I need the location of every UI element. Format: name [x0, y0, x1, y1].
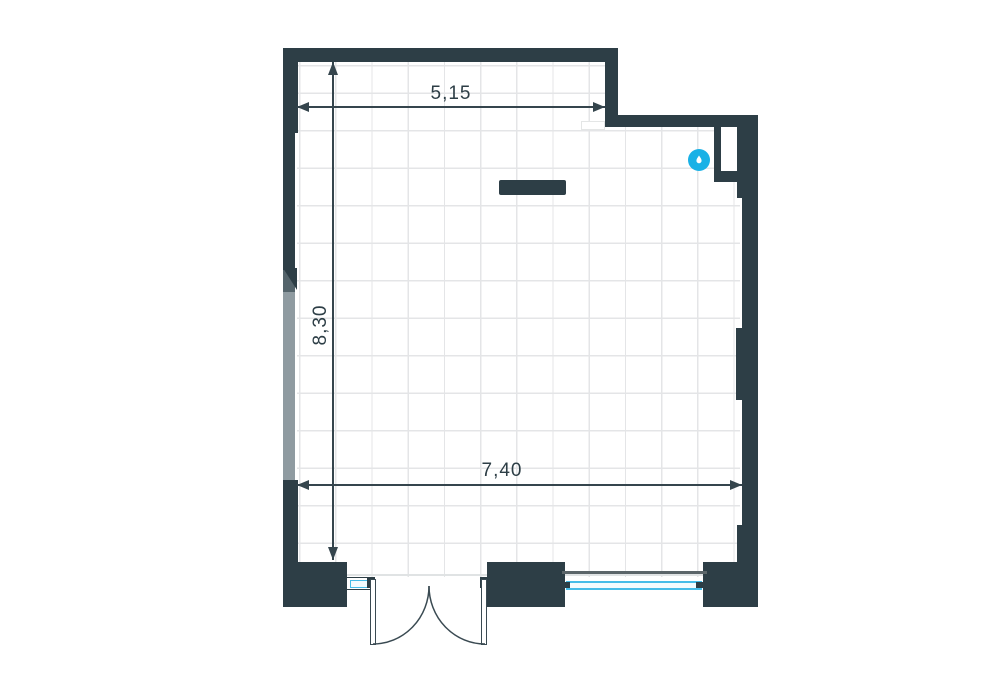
dim-label-left: 8,30: [310, 285, 332, 365]
dim-arrow-left-top: [328, 62, 338, 75]
dim-line-bottom: [297, 484, 742, 486]
dim-arrow-top-left: [297, 102, 309, 112]
water-drop-icon: [688, 149, 710, 171]
dim-label-top: 5,15: [411, 83, 491, 105]
dim-arrow-bottom-left: [297, 480, 309, 490]
floor-plan: 5,15 8,30 7,40: [0, 0, 996, 679]
dim-line-top: [297, 106, 605, 108]
door-swing-arcs: [0, 0, 996, 679]
dim-label-bottom: 7,40: [462, 460, 542, 482]
dim-arrow-top-right: [593, 102, 605, 112]
dim-arrow-left-bottom: [328, 547, 338, 560]
dim-arrow-bottom-right: [730, 480, 742, 490]
water-drop-glyph: [693, 154, 705, 166]
